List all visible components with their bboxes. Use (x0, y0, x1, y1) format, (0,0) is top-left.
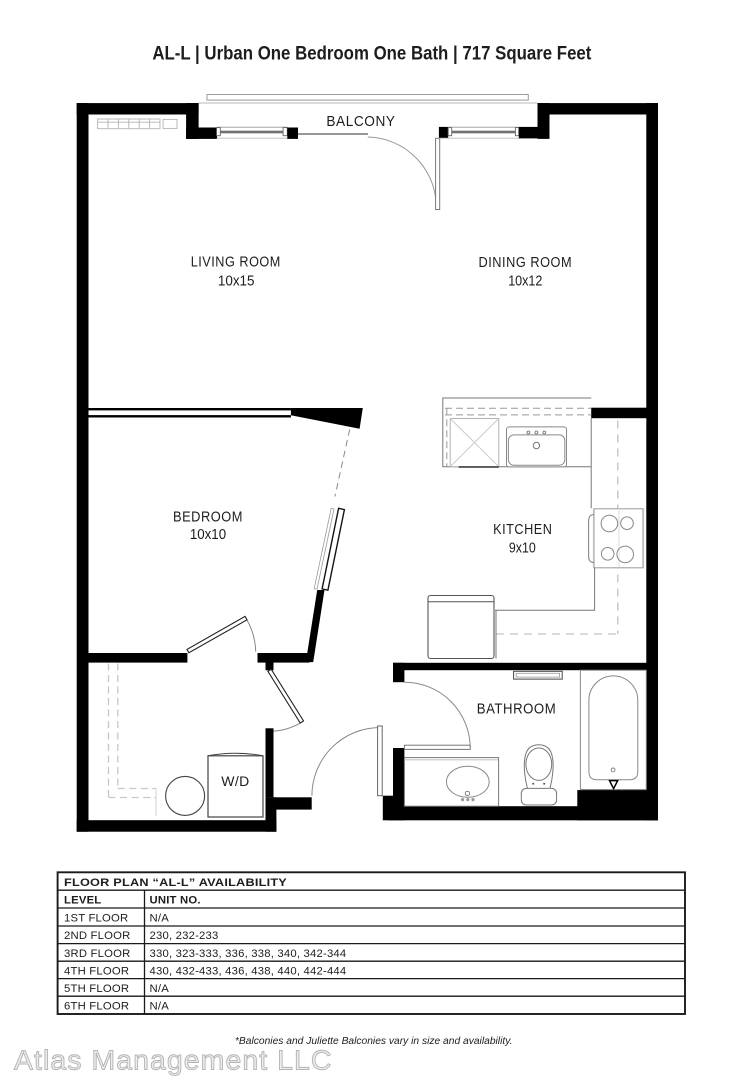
svg-text:W/D: W/D (221, 773, 249, 789)
svg-text:230, 232-233: 230, 232-233 (150, 930, 219, 942)
svg-text:LIVING ROOM: LIVING ROOM (191, 254, 281, 270)
svg-text:1ST FLOOR: 1ST FLOOR (64, 913, 128, 925)
svg-text:DINING ROOM: DINING ROOM (479, 255, 573, 271)
svg-text:10x10: 10x10 (190, 527, 226, 543)
svg-text:KITCHEN: KITCHEN (493, 522, 552, 538)
svg-text:N/A: N/A (150, 913, 170, 925)
svg-text:N/A: N/A (150, 1001, 170, 1013)
svg-text:330, 323-333, 336, 338, 340, 3: 330, 323-333, 336, 338, 340, 342-344 (150, 948, 347, 960)
svg-text:9x10: 9x10 (509, 541, 536, 557)
svg-text:BEDROOM: BEDROOM (173, 509, 243, 525)
svg-text:LEVEL: LEVEL (64, 895, 101, 907)
svg-text:UNIT NO.: UNIT NO. (150, 895, 201, 907)
svg-text:10x12: 10x12 (508, 273, 542, 289)
svg-text:430, 432-433, 436, 438, 440, 4: 430, 432-433, 436, 438, 440, 442-444 (150, 966, 347, 978)
svg-text:5TH FLOOR: 5TH FLOOR (64, 983, 129, 995)
svg-text:*Balconies and Juliette Balcon: *Balconies and Juliette Balconies vary i… (235, 1036, 513, 1047)
svg-text:AL-L | Urban One Bedroom One B: AL-L | Urban One Bedroom One Bath | 717 … (152, 43, 591, 64)
svg-text:FLOOR PLAN “AL-L” AVAILABILITY: FLOOR PLAN “AL-L” AVAILABILITY (64, 877, 287, 889)
svg-text:6TH FLOOR: 6TH FLOOR (64, 1001, 129, 1013)
svg-text:4TH FLOOR: 4TH FLOOR (64, 966, 129, 978)
svg-text:BALCONY: BALCONY (326, 114, 395, 130)
svg-text:Atlas Management LLC: Atlas Management LLC (14, 1045, 333, 1076)
svg-text:BATHROOM: BATHROOM (477, 702, 557, 718)
svg-text:10x15: 10x15 (218, 273, 255, 289)
svg-text:N/A: N/A (150, 983, 170, 995)
svg-text:3RD FLOOR: 3RD FLOOR (64, 948, 130, 960)
svg-text:2ND FLOOR: 2ND FLOOR (64, 930, 130, 942)
